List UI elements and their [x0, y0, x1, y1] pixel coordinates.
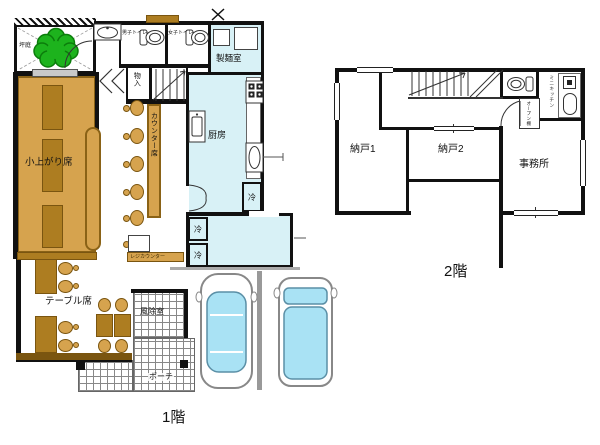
counter-stool-back: [123, 133, 130, 140]
tsuboniwa-label: 坪庭: [19, 43, 31, 49]
folding-door-icon: [100, 69, 124, 93]
mini-kitchen-stove-dot: [567, 80, 572, 85]
chair: [58, 262, 73, 275]
window: [357, 67, 393, 73]
stair-hall-line: [408, 97, 503, 99]
roof-x-mark: [212, 9, 224, 20]
floor2-label: 2階: [444, 264, 467, 280]
wall: [406, 179, 502, 182]
counter-stool-back: [123, 105, 130, 112]
fridge-label: 冷: [248, 192, 256, 203]
chair-back: [73, 342, 79, 348]
koagari-bench: [85, 127, 101, 251]
chair: [115, 298, 128, 312]
counter-stool-back: [123, 215, 130, 222]
wall-table: [35, 316, 57, 353]
fence-hatch: [14, 18, 96, 25]
stairs-2f-treads: [409, 70, 503, 97]
chair: [58, 321, 73, 334]
wall: [500, 68, 503, 99]
sliding-door: [434, 126, 474, 131]
table-area-base: [16, 353, 132, 362]
center-table: [96, 314, 113, 337]
wall: [95, 74, 99, 130]
counter-stool-back: [123, 161, 130, 168]
floor-plan: 坪庭 小上がり席 男子トイレ 女子トイレ 製麺室 物入 冷 厨房 冷 冷 カウン…: [0, 0, 600, 445]
wall: [13, 74, 18, 259]
wall: [16, 256, 21, 358]
koagari-label: 小上がり席: [25, 158, 73, 168]
open-shelf-label: オープン棚: [526, 101, 531, 126]
chair-back: [73, 324, 79, 330]
wall: [538, 118, 585, 121]
porch-post: [180, 360, 188, 368]
table-seki-label: テーブル席: [45, 297, 92, 307]
counter-label: カウンター席: [150, 112, 157, 157]
chair: [58, 339, 73, 352]
wall: [499, 126, 503, 268]
jimusho-label: 事務所: [519, 160, 549, 171]
chair: [98, 298, 111, 312]
toilet-icon: [508, 77, 534, 91]
counter-stool: [130, 210, 144, 226]
porch-left: [78, 360, 133, 392]
toilet-vanity: [146, 15, 179, 23]
window: [334, 83, 340, 120]
counter-stool: [130, 128, 144, 144]
hand-sink-icon: [94, 24, 121, 40]
counter-stool: [130, 156, 144, 172]
womens-toilet-label: 女子トイレ: [168, 31, 193, 36]
fridge-label: 冷: [194, 250, 202, 261]
center-table: [114, 314, 131, 337]
seimen-equipment: [213, 29, 230, 46]
car-icon: [196, 274, 257, 388]
fridge-unit: 冷: [188, 217, 208, 241]
koagari-step-edge: [17, 252, 97, 260]
wall-table: [35, 259, 57, 294]
koagari-table: [42, 85, 63, 130]
nando1-label: 納戸1: [350, 145, 376, 156]
wall: [379, 68, 382, 130]
mini-kitchen-label: ミニキッチン: [548, 75, 553, 108]
register-box: [128, 235, 150, 252]
window: [514, 210, 558, 216]
chubo-label: 厨房: [208, 131, 226, 140]
office-door-arc: [501, 101, 520, 126]
fridge-unit: 冷: [188, 243, 208, 267]
nando2-label: 納戸2: [438, 145, 464, 156]
wall: [184, 289, 188, 338]
counter-stool: [130, 184, 144, 200]
window: [580, 140, 586, 186]
rear-door-opening: [249, 211, 279, 217]
fridge-unit: 冷: [242, 182, 262, 212]
wall: [94, 21, 264, 25]
wall: [119, 64, 211, 68]
wall: [536, 68, 539, 99]
wall: [335, 211, 411, 215]
register-counter-label: レジカウンター: [130, 255, 165, 260]
car-icon: [274, 278, 337, 386]
wall: [131, 289, 188, 293]
kitchen-counter: [246, 77, 261, 179]
chair: [98, 339, 111, 353]
seimen-label: 製麺室: [216, 54, 242, 63]
wall: [406, 128, 409, 214]
chair: [115, 339, 128, 353]
seimen-equipment: [234, 27, 258, 50]
chair-back: [73, 283, 79, 289]
koagari-table: [42, 205, 63, 248]
counter-stool-back: [123, 189, 130, 196]
chair: [58, 280, 73, 293]
tsuboniwa-step: [32, 69, 78, 77]
porch-label: ポーチ: [148, 373, 174, 381]
monoire-label: 物入: [133, 72, 140, 87]
chair-back: [73, 265, 79, 271]
mini-kitchen-sink: [563, 93, 577, 115]
kitchen-door-opening: [184, 186, 189, 212]
counter-stool: [130, 100, 144, 116]
mens-toilet-label: 男子トイレ: [122, 31, 147, 36]
parking-divider: [257, 271, 262, 390]
carport-line: [170, 267, 300, 270]
fridge-label: 冷: [194, 224, 202, 235]
fujoshitsu-label: 風除室: [140, 308, 164, 316]
floor1-label: 1階: [162, 410, 185, 426]
